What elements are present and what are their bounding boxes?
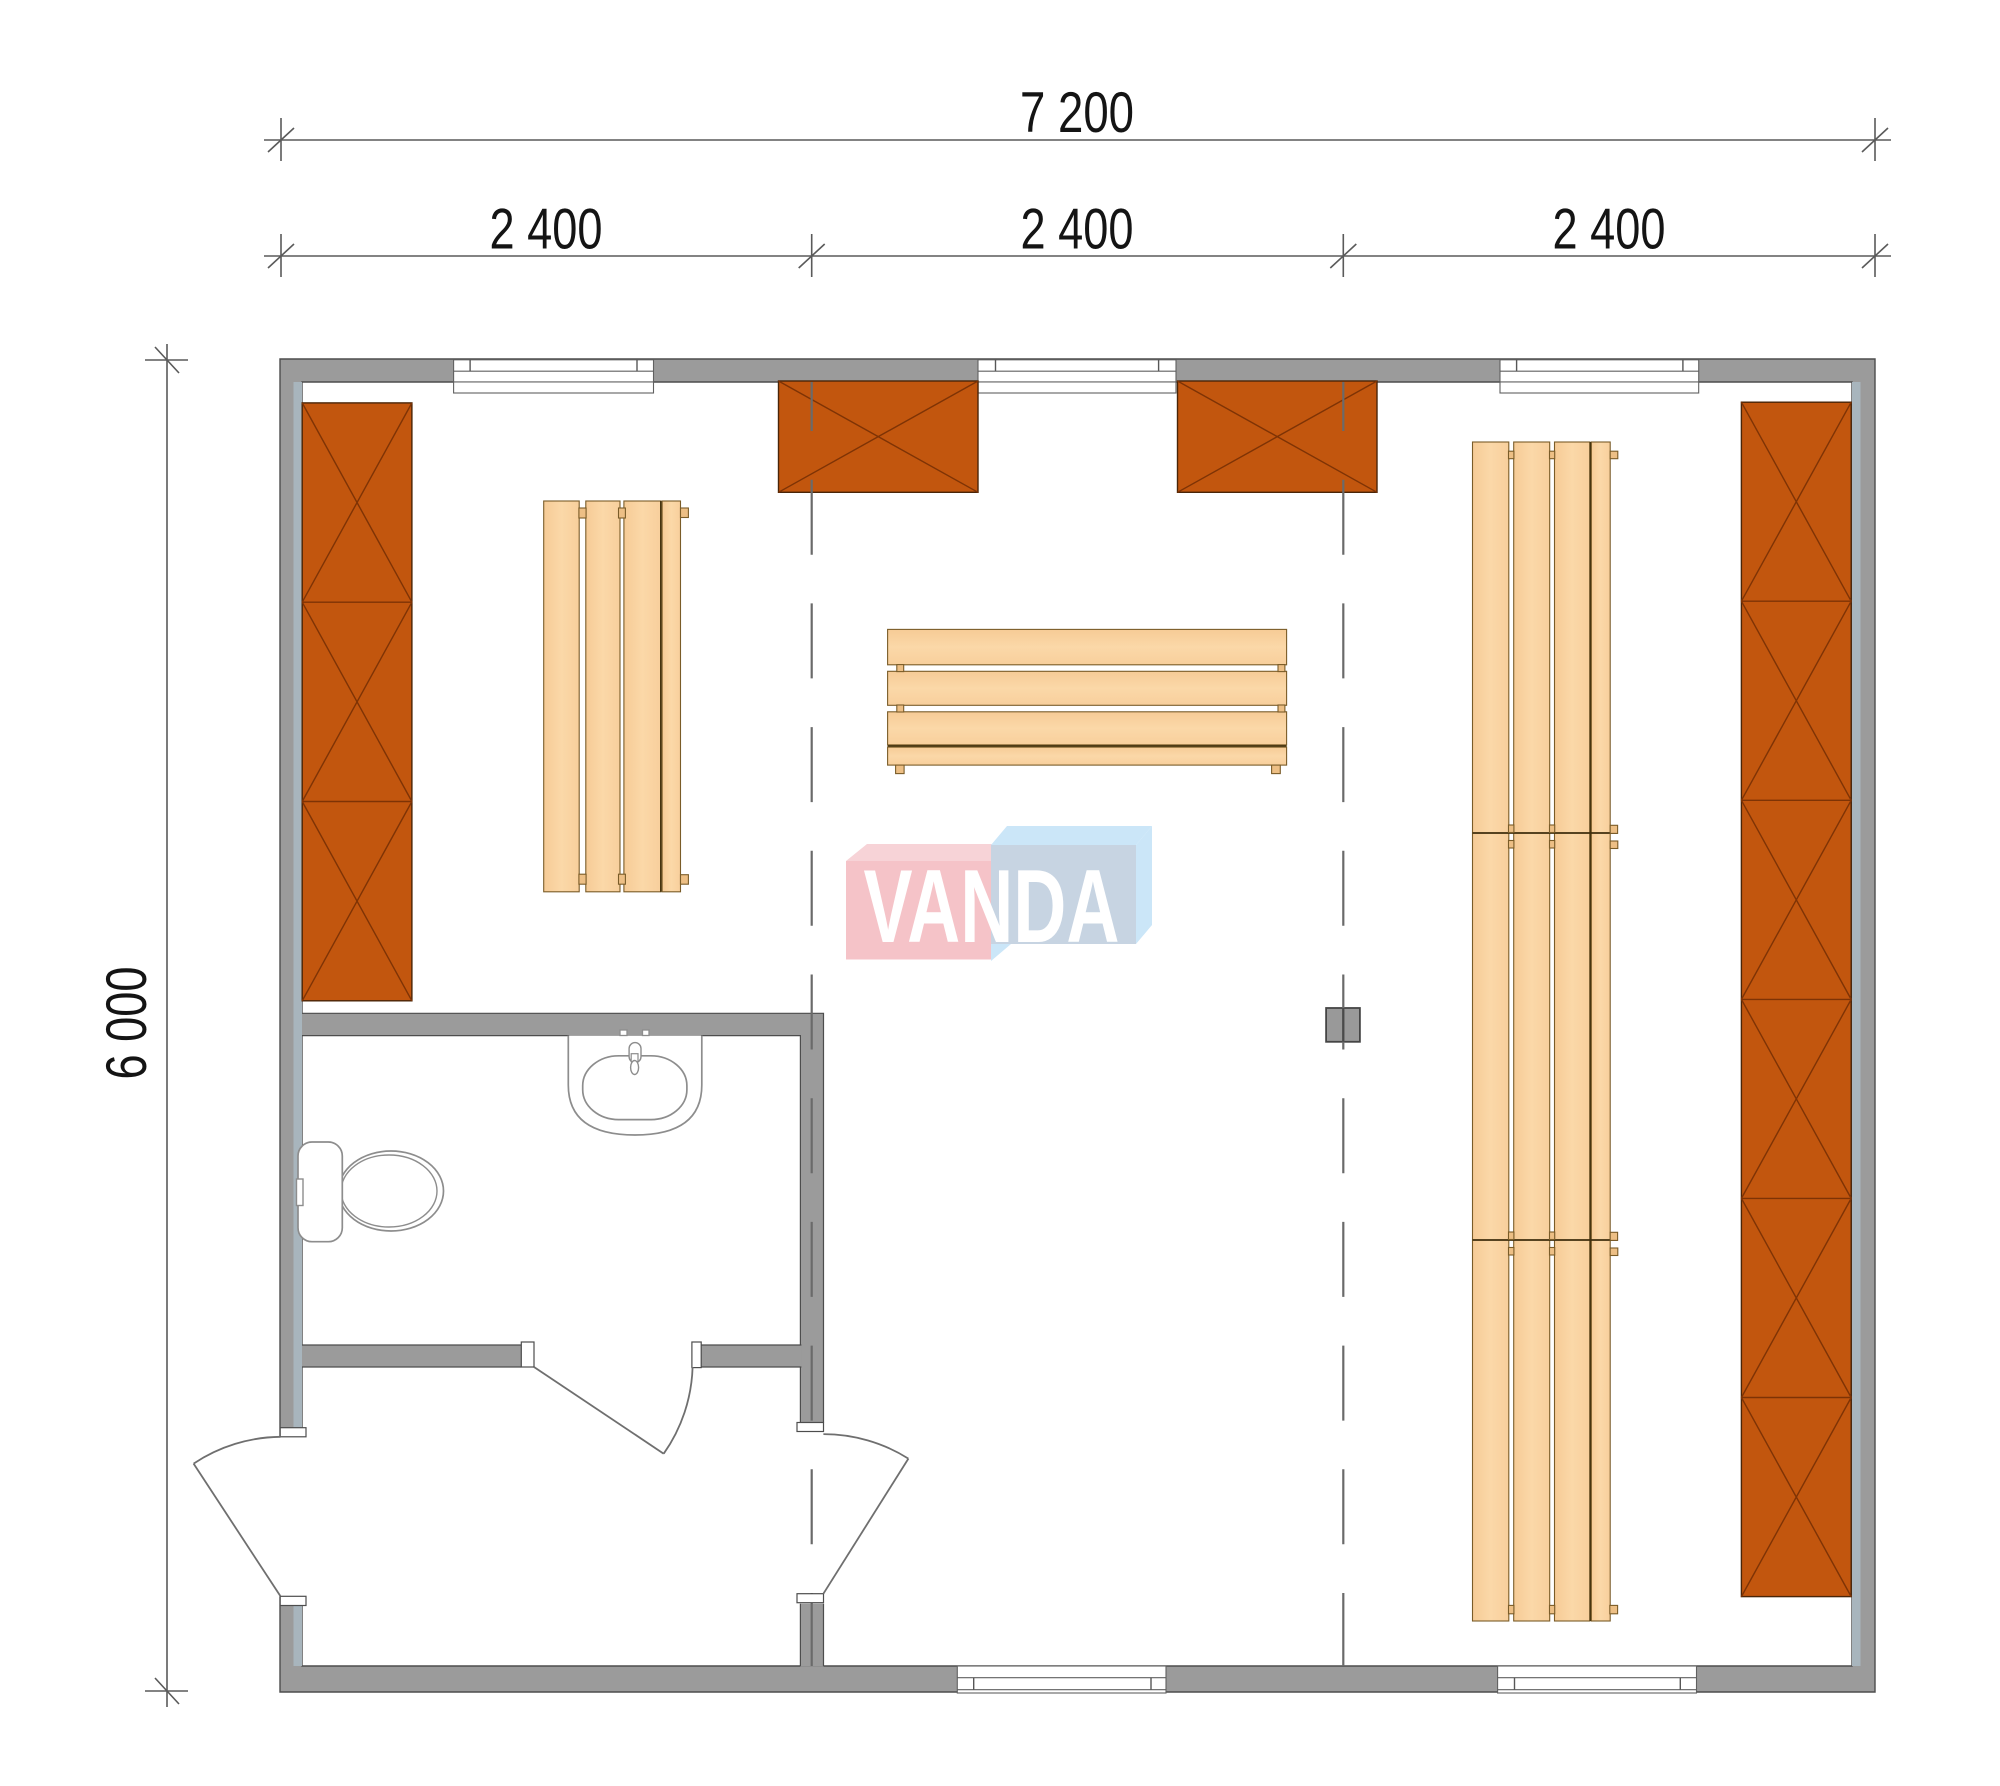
svg-text:7 200: 7 200: [1020, 81, 1134, 145]
svg-text:2 400: 2 400: [490, 198, 603, 262]
svg-text:VANDA: VANDA: [864, 849, 1120, 965]
svg-text:2 400: 2 400: [1553, 198, 1666, 262]
svg-text:2 400: 2 400: [1021, 198, 1134, 262]
svg-text:6 000: 6 000: [95, 967, 159, 1080]
